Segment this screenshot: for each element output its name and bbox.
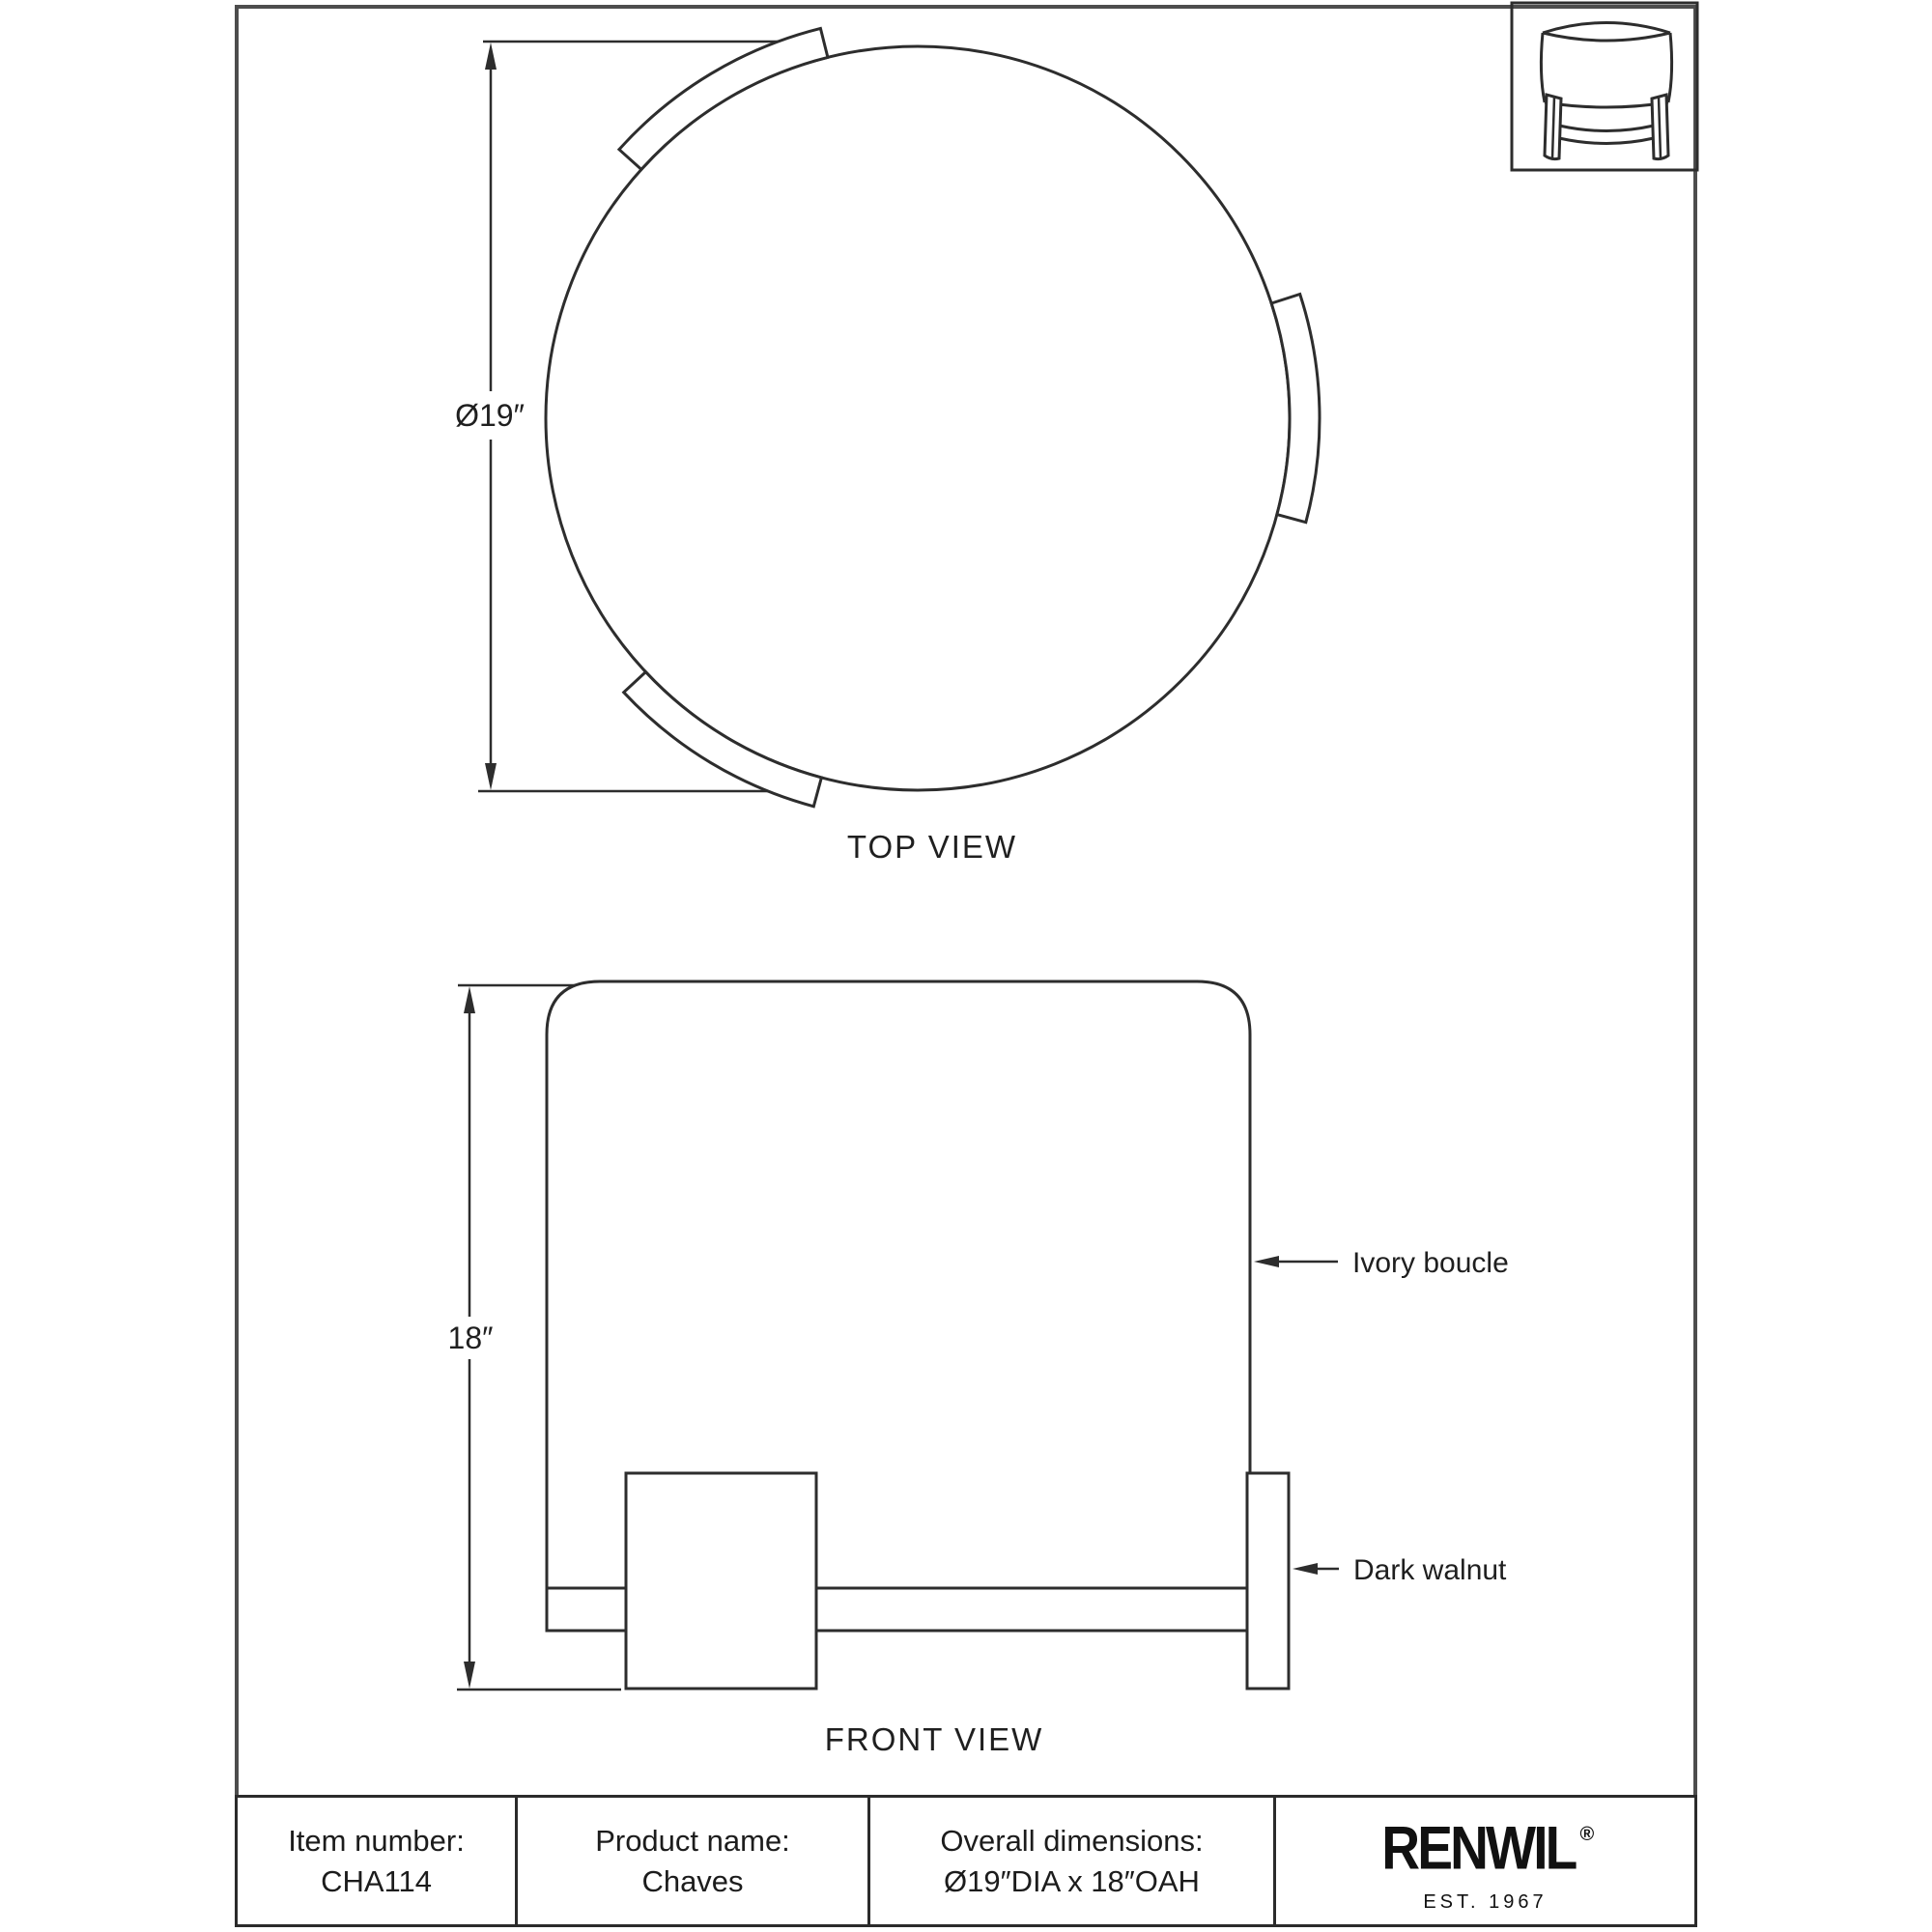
front-view-caption: FRONT VIEW xyxy=(825,1721,1044,1757)
arrowhead-down-icon xyxy=(464,1662,475,1689)
seat-circle xyxy=(546,46,1290,790)
overall-dimensions-value: Ø19″DIA x 18″OAH xyxy=(944,1861,1200,1902)
ottoman-pictogram-icon xyxy=(1512,3,1697,170)
spec-table: Item number: CHA114 Product name: Chaves… xyxy=(235,1795,1697,1927)
arrowhead-left-icon xyxy=(1293,1563,1318,1575)
front-view: 18″ Ivory boucle Dark walnut FRONT VIEW xyxy=(448,981,1509,1757)
top-view: Ø19″ TOP VIEW xyxy=(455,28,1320,865)
brand-cell: RENWIL® EST. 1967 xyxy=(1273,1798,1694,1924)
brand-tagline: EST. 1967 xyxy=(1423,1891,1547,1914)
height-label: 18″ xyxy=(448,1321,494,1355)
upholstery-callout: Ivory boucle xyxy=(1254,1247,1509,1279)
item-number-cell: Item number: CHA114 xyxy=(238,1798,515,1924)
overall-dimensions-cell: Overall dimensions: Ø19″DIA x 18″OAH xyxy=(867,1798,1273,1924)
brand-wordmark: RENWIL xyxy=(1381,1821,1575,1877)
product-name-label: Product name: xyxy=(595,1821,790,1861)
diameter-label: Ø19″ xyxy=(455,398,525,433)
height-dimension: 18″ xyxy=(448,986,494,1689)
spec-sheet: Ø19″ TOP VIEW 18″ xyxy=(0,0,1932,1932)
brand-logo: RENWIL® xyxy=(1377,1808,1595,1889)
arrowhead-left-icon xyxy=(1254,1256,1279,1267)
arrowhead-up-icon xyxy=(464,986,475,1013)
right-foot xyxy=(1247,1473,1289,1689)
left-foot xyxy=(626,1473,816,1689)
diameter-dimension: Ø19″ xyxy=(455,43,525,790)
overall-dimensions-label: Overall dimensions: xyxy=(940,1821,1203,1861)
item-number-label: Item number: xyxy=(288,1821,465,1861)
product-name-cell: Product name: Chaves xyxy=(515,1798,867,1924)
wood-callout: Dark walnut xyxy=(1293,1554,1507,1586)
arrowhead-up-icon xyxy=(485,43,497,70)
technical-drawing: Ø19″ TOP VIEW 18″ xyxy=(0,0,1932,1932)
wood-callout-label: Dark walnut xyxy=(1353,1554,1507,1586)
top-view-caption: TOP VIEW xyxy=(847,829,1017,865)
arrowhead-down-icon xyxy=(485,763,497,790)
item-number-value: CHA114 xyxy=(321,1861,432,1902)
upholstery-callout-label: Ivory boucle xyxy=(1352,1247,1509,1279)
registered-trademark-icon: ® xyxy=(1580,1824,1595,1845)
product-name-value: Chaves xyxy=(641,1861,743,1902)
